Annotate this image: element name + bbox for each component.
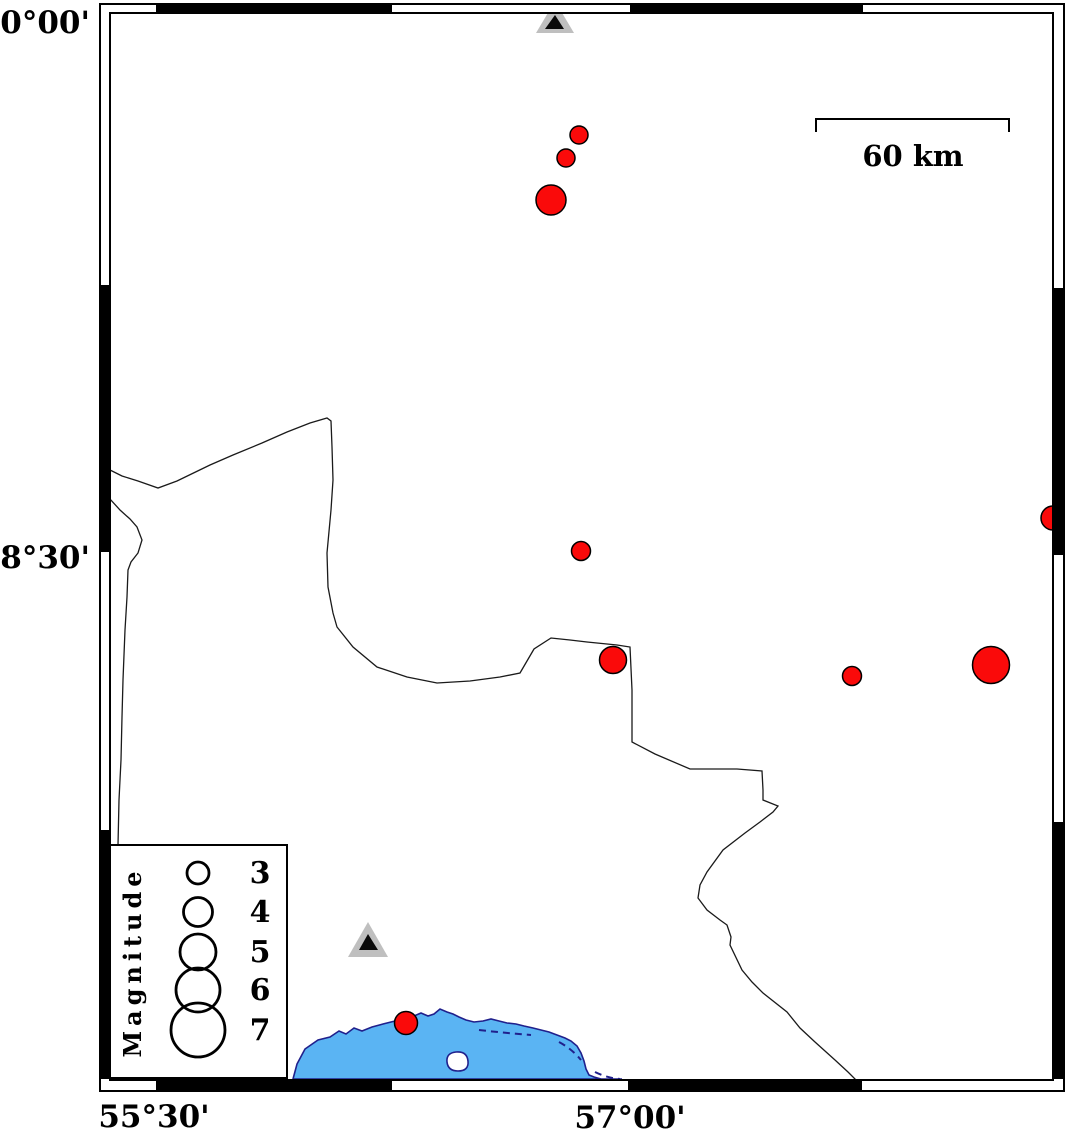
lon-label-57-00: 57°00' [574,1100,685,1130]
frame-band-black-right [1053,288,1064,555]
island [447,1052,468,1071]
earthquake-marker-1 [570,126,588,144]
legend-label-mag-5: 5 [250,935,271,970]
seismicity-map: 30°00' 28°30' 55°30' 57°00' 60 km Magnit… [0,0,1066,1130]
admin-boundary-west [110,499,142,845]
earthquake-marker-6 [843,667,862,686]
frame-band-black-top [630,4,863,13]
scale-bar-bracket [816,119,1009,132]
frame-band-black-bottom [156,1080,392,1091]
earthquake-marker-9 [395,1012,418,1035]
frame-band-black-bottom [628,1080,862,1091]
frame-band-black-left [100,285,110,552]
earthquake-marker-2 [557,149,575,167]
station-south [348,922,388,957]
frame-band-black-right [1053,822,1064,1079]
earthquake-marker-5 [600,647,627,674]
legend-label-mag-6: 6 [250,973,271,1008]
magnitude-legend: Magnitude 34567 [110,845,287,1078]
legend-title: Magnitude [118,866,147,1057]
map-canvas: 30°00' 28°30' 55°30' 57°00' 60 km Magnit… [0,0,1066,1130]
earthquake-marker-3 [536,185,566,215]
earthquake-epicenters [395,126,1066,1035]
legend-label-mag-3: 3 [250,856,271,891]
legend-label-mag-4: 4 [250,895,271,930]
scale-bar-label: 60 km [862,139,964,173]
legend-label-mag-7: 7 [250,1013,271,1048]
lon-label-55-30: 55°30' [98,1099,209,1130]
scale-bar: 60 km [816,119,1009,173]
frame-band-black-left [100,830,110,1079]
station-markers [348,1,574,957]
frame-band-black-top [156,4,392,13]
earthquake-marker-7 [973,647,1010,684]
lat-label-30-00: 30°00' [0,5,90,41]
earthquake-marker-4 [572,542,591,561]
lat-label-28-30: 28°30' [0,540,90,576]
